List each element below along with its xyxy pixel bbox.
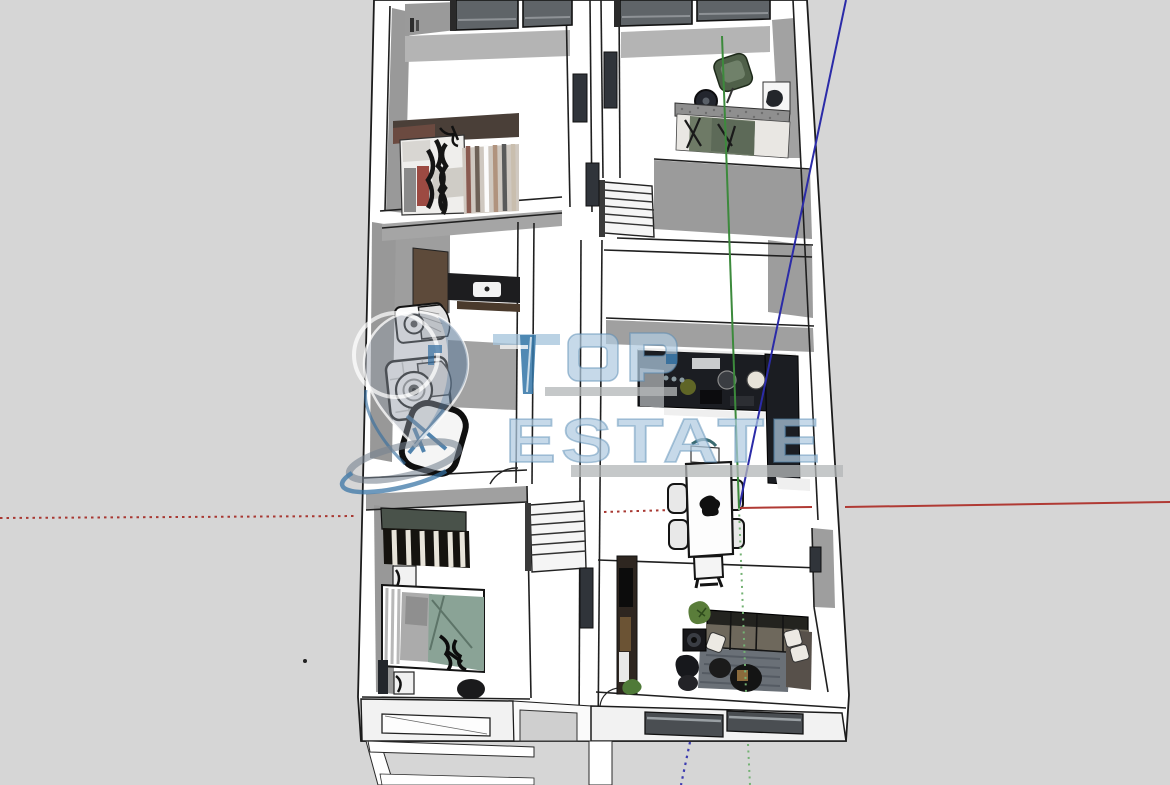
svg-text:ESTATE: ESTATE — [505, 407, 825, 476]
